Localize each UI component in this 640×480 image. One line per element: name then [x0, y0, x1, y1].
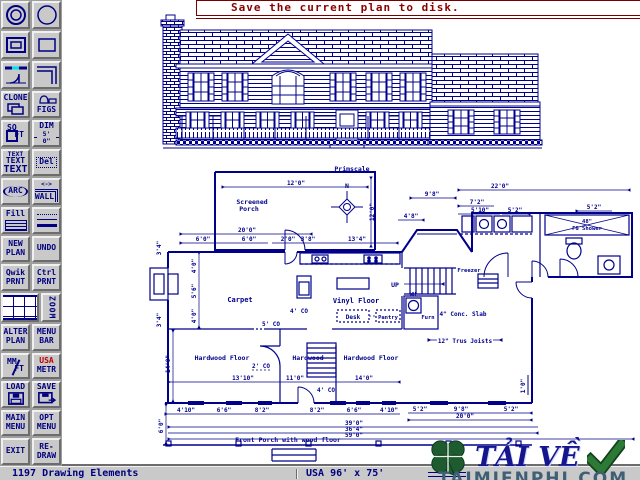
dim: 4'0": [191, 259, 198, 273]
dim: 20'0": [456, 413, 474, 420]
plan-label: 5' CO: [262, 321, 280, 328]
undo-label: UNDO: [37, 244, 56, 253]
thin-line-icon: [37, 219, 57, 220]
status-message: Save the current plan to disk.: [231, 1, 460, 14]
dim: 12'0": [287, 180, 305, 187]
status-divider: [296, 469, 298, 479]
dim: 6'0": [158, 419, 165, 433]
exit-button[interactable]: EXIT: [1, 438, 30, 465]
text-large-label: TEXT: [3, 165, 27, 175]
arc-label: ARC: [3, 186, 27, 197]
site-watermark-text: TAIMIENPHI.COM: [438, 469, 640, 480]
rect-tool-button[interactable]: [32, 31, 61, 59]
dim: 3'8": [301, 236, 315, 243]
dim: 8'2": [255, 407, 269, 414]
hatch-icon: [5, 220, 27, 231]
dim: 20'0": [238, 227, 256, 234]
alter-plan-button[interactable]: ALTER PLAN: [1, 324, 30, 351]
wall-button[interactable]: <-> WALL: [32, 178, 61, 205]
dim: 14'0": [165, 355, 172, 373]
plan-label: 48": [582, 219, 592, 225]
plan-label: 4' CO: [317, 387, 335, 394]
dim: 4'10": [177, 407, 195, 414]
quick-print-button[interactable]: Qwik PRNT: [1, 264, 30, 291]
alter-label-2: PLAN: [6, 337, 25, 346]
new-plan-button[interactable]: NEW PLAN: [1, 236, 30, 263]
corner-wall-icon: [35, 63, 59, 87]
app-window: Primscale N Screened Porch Carpet Vinyl …: [0, 0, 640, 480]
dotted-line-icon: [37, 214, 57, 215]
circle-icon: [35, 3, 59, 27]
figs-label: FIGS: [37, 106, 56, 115]
dim: 5'2": [508, 207, 522, 214]
dim: 1'0": [520, 379, 527, 393]
door-swing-icon: [4, 63, 28, 87]
plan-label: Vinyl Floor: [333, 297, 379, 305]
element-count: 1197 Drawing Elements: [12, 467, 138, 480]
plan-label: Hardwood Floor: [195, 354, 250, 362]
opt-menu-label-2: MENU: [37, 423, 56, 432]
sqft-button[interactable]: SQ FT: [1, 120, 30, 147]
main-menu-label-2: MENU: [6, 423, 25, 432]
plan-dimensions: 12'0" 12'0" 20'0" 6'0" 6'0" 2'0" 3'8" 13…: [156, 180, 601, 439]
dim: 9'8": [454, 406, 468, 413]
plan-label: Furn: [421, 315, 434, 321]
dim: 8'2": [310, 407, 324, 414]
menu-bar-label-2: BAR: [39, 337, 53, 346]
plan-label: Pantry: [378, 315, 399, 321]
plan-label: FG Shower: [572, 226, 602, 232]
plan-label: 4" Conc. Slab: [440, 311, 487, 318]
exit-label: EXIT: [6, 447, 25, 456]
dim: 6'6": [347, 407, 361, 414]
plan-label: 4' CO: [290, 308, 308, 315]
dim: 5'10": [471, 207, 489, 214]
download-watermark-text: TẢI VỀ: [475, 442, 580, 473]
dim: 14'0": [355, 375, 373, 382]
circle-tool-button[interactable]: [32, 1, 61, 29]
main-menu-button[interactable]: MAIN MENU: [1, 410, 30, 437]
dim: 5'2": [504, 406, 518, 413]
text-button[interactable]: TEXT TEXT TEXT: [1, 149, 30, 176]
dim: 9'8": [425, 191, 439, 198]
dim: 22'0": [491, 183, 509, 190]
clone-label: CLONE: [3, 94, 27, 103]
qwik-label-2: PRNT: [6, 278, 25, 287]
double-circle-icon: [4, 3, 28, 27]
grid-button[interactable]: [1, 293, 39, 322]
rectangle-icon: [35, 33, 59, 57]
plan-label: Hardwood Floor: [344, 354, 399, 362]
plan-label: Hardwood: [292, 354, 323, 362]
dim-value: 5' 0": [34, 131, 59, 146]
floppy-save-icon: [38, 392, 56, 405]
dim: 13'10": [232, 375, 254, 382]
plan-label: WH: [410, 292, 416, 298]
plan-label: UP: [391, 281, 399, 289]
plan-label: Carpet: [227, 296, 252, 304]
dim: 5'6": [191, 284, 198, 298]
grid-icon: [1, 295, 39, 320]
dim: 5'2": [413, 406, 427, 413]
ctrl-print-button[interactable]: Ctrl PRNT: [32, 264, 61, 291]
thick-line-icon: [37, 224, 57, 227]
dim: 11'0": [286, 375, 304, 382]
double-rectangle-icon: [4, 33, 28, 57]
opt-menu-button[interactable]: OPT MENU: [32, 410, 61, 437]
corner-wall-tool-button[interactable]: [32, 61, 61, 89]
dim-button[interactable]: DIM 5' 0": [32, 120, 61, 147]
load-label: LOAD: [6, 383, 25, 392]
blueprint-drawing: Primscale N Screened Porch Carpet Vinyl …: [0, 0, 640, 466]
arc-button[interactable]: ARC: [1, 178, 30, 205]
plan-label: Desk: [346, 314, 361, 321]
tool-palette: CLONE FIGS SQ FT DIM: [0, 0, 62, 466]
message-bar: Save the current plan to disk.: [196, 0, 640, 16]
mm-ft-toggle-button[interactable]: MM FT: [1, 353, 30, 380]
dim: 4'10": [380, 407, 398, 414]
dim: 5'2": [587, 204, 601, 211]
dim: 12'0": [369, 203, 376, 221]
figs-button[interactable]: FIGS: [32, 91, 61, 118]
double-rect-tool-button[interactable]: [1, 31, 30, 59]
plan-label: 12" Trus Joists: [438, 338, 493, 345]
wall-arrow-icon: <->: [41, 182, 52, 189]
plan-label: Primscale: [334, 165, 369, 173]
undo-button[interactable]: UNDO: [32, 236, 61, 263]
mm-label: MM: [7, 358, 17, 367]
clone-button[interactable]: CLONE: [1, 91, 30, 118]
ctrl-label-2: PRNT: [37, 278, 56, 287]
clone-icon: [6, 103, 26, 115]
fill-label: Fill: [6, 210, 25, 219]
dim: 6'0": [242, 236, 256, 243]
door-tool-button[interactable]: [1, 61, 30, 89]
dim: 6'0": [196, 236, 210, 243]
wall-label: WALL: [35, 189, 58, 202]
del-label: Del: [36, 157, 56, 168]
save-label: SAVE: [37, 383, 56, 392]
dim: 13'4": [348, 236, 366, 243]
delete-button[interactable]: Del: [32, 149, 61, 176]
plan-label: 2' CO: [252, 363, 270, 370]
load-button[interactable]: LOAD: [1, 381, 30, 408]
dim: 2'0": [281, 236, 295, 243]
drawing-canvas[interactable]: Primscale N Screened Porch Carpet Vinyl …: [0, 0, 640, 466]
zoom-label: ZOOM: [46, 296, 55, 319]
plan-label: Front Porch with wood floor: [235, 436, 341, 444]
dim: 59'0": [345, 432, 363, 439]
donut-tool-button[interactable]: [1, 1, 30, 29]
plan-size: USA 96' x 75': [306, 467, 384, 480]
menu-bar-button[interactable]: MENU BAR: [32, 324, 61, 351]
plan-label: N: [345, 182, 349, 190]
redraw-button[interactable]: RE- DRAW: [32, 438, 61, 465]
plan-label: Freezer: [457, 268, 481, 274]
metr-label: METR: [37, 366, 56, 375]
usa-metric-toggle-button[interactable]: USA METR: [32, 353, 61, 380]
redraw-label-2: DRAW: [37, 452, 56, 461]
new-plan-label-2: PLAN: [6, 249, 25, 258]
plan-label: Porch: [239, 205, 259, 213]
dim: 3'4": [156, 313, 163, 327]
zoom-button[interactable]: ZOOM: [41, 293, 61, 322]
dim: 3'4": [156, 241, 163, 255]
fill-button[interactable]: Fill: [1, 207, 30, 234]
floppy-disk-icon: [8, 392, 24, 405]
save-button[interactable]: SAVE: [32, 381, 61, 408]
dim: 6'6": [217, 407, 231, 414]
dim: 4'8": [404, 213, 418, 220]
dim: 7'2": [470, 199, 484, 206]
compass-rose: [331, 191, 363, 223]
line-style-button[interactable]: [32, 207, 61, 234]
house-elevation: [161, 15, 542, 148]
dim: 4'0": [191, 309, 198, 323]
square-icon: [6, 130, 18, 142]
ft-label-2: FT: [14, 365, 24, 374]
